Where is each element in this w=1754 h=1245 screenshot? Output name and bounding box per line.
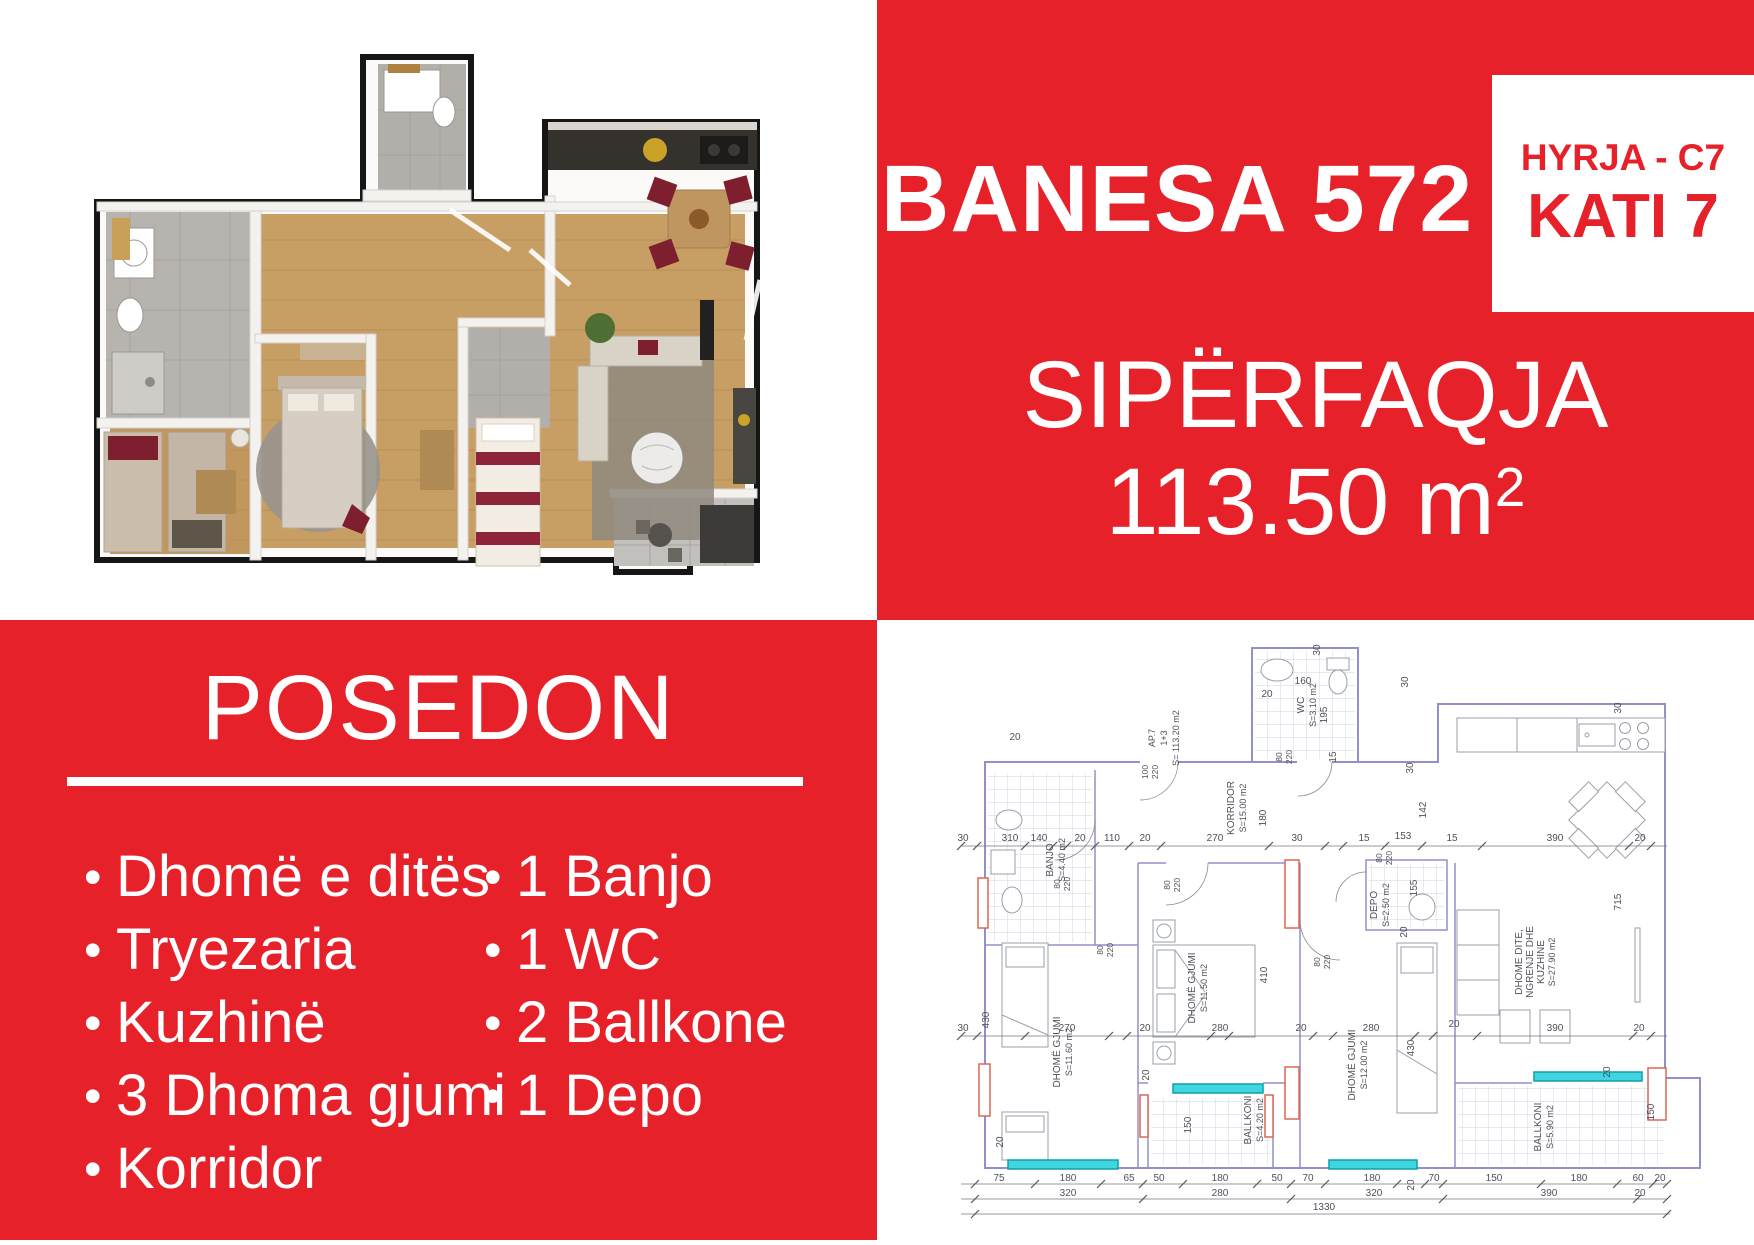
floor-label: KATI 7: [1527, 186, 1719, 248]
plan-label: 270: [1059, 1023, 1076, 1034]
list-item: •3 Dhoma gjumi: [84, 1059, 506, 1132]
plan-label: 15: [1446, 833, 1458, 844]
plan-label: 430: [981, 1011, 992, 1028]
plan-label: 15: [1358, 833, 1370, 844]
divider-line: [67, 777, 803, 786]
features-list-right: •1 Banjo•1 WC•2 Ballkone•1 Depo: [484, 840, 787, 1132]
bullet-icon: •: [84, 1067, 116, 1125]
list-item-label: 3 Dhoma gjumi: [116, 1062, 506, 1129]
plan-label: 220: [1150, 765, 1160, 779]
plan-label: 320: [1060, 1188, 1077, 1199]
plan-label: 80: [1374, 853, 1384, 863]
plan-label: 30: [957, 833, 969, 844]
plan-label: 30: [1613, 702, 1624, 714]
plan-label: 320: [1366, 1188, 1383, 1199]
plan-label: AP.7: [1147, 729, 1157, 747]
plan-label: 20: [1074, 833, 1086, 844]
plan-label: 220: [1172, 878, 1182, 892]
plan-label: 30: [1400, 676, 1411, 688]
plan-label: 220: [1284, 750, 1294, 764]
plan-label: 20: [1295, 1023, 1307, 1034]
plan-label: 30: [1291, 833, 1303, 844]
list-item: •1 Depo: [484, 1059, 787, 1132]
plan-label: 80: [1052, 879, 1062, 889]
plan-label: S=4.20 m2: [1255, 1098, 1265, 1142]
bullet-icon: •: [484, 848, 516, 906]
apartment-title: BANESA 572: [877, 152, 1477, 247]
area-title: SIPËRFAQJA: [877, 348, 1754, 443]
plan-label: 155: [1409, 879, 1420, 896]
header-panel: BANESA 572 HYRJA - C7 KATI 7 SIPËRFAQJA …: [877, 0, 1754, 620]
plan-label: 30: [957, 1023, 969, 1034]
bullet-icon: •: [484, 994, 516, 1052]
plan-label: S=15.00 m2: [1238, 784, 1248, 833]
plan-label: 50: [1271, 1173, 1283, 1184]
plan-label: 75: [993, 1173, 1005, 1184]
plan-label: 20: [1406, 1179, 1417, 1191]
plan-label: 110: [1104, 833, 1120, 844]
area-superscript: 2: [1495, 456, 1526, 518]
plan-label: 140: [1031, 833, 1048, 844]
plan-label: 20: [1654, 1173, 1666, 1184]
plan-label: 20: [995, 1136, 1006, 1148]
plan-label: 80: [1162, 880, 1172, 890]
plan-label: 142: [1418, 801, 1429, 818]
plan-label: 20: [1139, 833, 1151, 844]
list-item-label: Kuzhinë: [116, 989, 326, 1056]
area-value: 113.50 m2: [877, 455, 1754, 550]
plan-label: 180: [1060, 1173, 1077, 1184]
techplan-panel: WCS=3.10 m2KORRIDORS=15.00 m2AP.71+3S= 1…: [877, 620, 1754, 1240]
bullet-icon: •: [84, 848, 116, 906]
plan-label: NGRENJE DHE: [1525, 926, 1536, 998]
list-item: •1 Banjo: [484, 840, 787, 913]
list-item: •Korridor: [84, 1132, 506, 1205]
plan-label: S=11.50 m2: [1199, 964, 1209, 1012]
plan-label: 150: [1486, 1173, 1503, 1184]
plan-label: BANJO: [1045, 843, 1056, 877]
plan-label: BALLKONI: [1243, 1096, 1254, 1145]
plan-label: 390: [1547, 833, 1564, 844]
plan-label: 150: [1183, 1116, 1194, 1133]
list-item: •Kuzhinë: [84, 986, 506, 1059]
plan-door-arcs: [1055, 762, 1366, 960]
plan-label: 70: [1428, 1173, 1440, 1184]
plan-label: 153: [1395, 831, 1412, 842]
plan-label: KORRIDOR: [1226, 781, 1237, 835]
bullet-icon: •: [84, 1140, 116, 1198]
plan-label: 20: [1634, 833, 1646, 844]
list-item-label: Tryezaria: [116, 916, 356, 983]
plan-label: WC: [1296, 697, 1307, 714]
bullet-icon: •: [84, 994, 116, 1052]
plan-label: 220: [1384, 851, 1394, 865]
features-panel: POSEDON •Dhomë e ditës•Tryezaria•Kuzhinë…: [0, 620, 877, 1240]
plan-label: 220: [1322, 955, 1332, 969]
entry-label: HYRJA - C7: [1521, 139, 1725, 176]
plan-label: 180: [1258, 809, 1269, 826]
plan-label: 270: [1207, 833, 1224, 844]
list-item-label: 2 Ballkone: [516, 989, 787, 1056]
plan-label: S=5.90 m2: [1545, 1105, 1555, 1149]
plan-label: 1330: [1313, 1202, 1336, 1213]
features-title: POSEDON: [0, 662, 877, 754]
plan-label: 20: [1399, 926, 1410, 938]
plan-label: 180: [1212, 1173, 1229, 1184]
plan-label: 80: [1095, 945, 1105, 955]
plan-label: 60: [1632, 1173, 1644, 1184]
plan-label: DHOMË GJUMI: [1346, 1029, 1358, 1100]
plan-label: 20: [1139, 1023, 1151, 1034]
plan-label: 30: [1312, 644, 1323, 656]
plan-label: 195: [1319, 706, 1330, 723]
plan-label: S= 113.20 m2: [1171, 710, 1181, 766]
plan-label: S=4.40 m2: [1057, 838, 1067, 882]
plan-label: 410: [1259, 966, 1270, 983]
apartment-3d-render: [0, 0, 877, 620]
plan-label: KUZHINE: [1536, 940, 1547, 984]
list-item-label: 1 Banjo: [516, 843, 713, 910]
plan-label: 15: [1328, 751, 1339, 763]
plan-label: 180: [1364, 1173, 1381, 1184]
plan-label: S=27.90 m2: [1547, 938, 1557, 987]
plan-label: 220: [1105, 943, 1115, 957]
list-item-label: 1 WC: [516, 916, 661, 983]
plan-label: BALLKONI: [1533, 1103, 1544, 1152]
plan-label: 20: [1141, 1069, 1152, 1081]
plan-label: 390: [1541, 1188, 1558, 1199]
plan-label: 20: [1448, 1019, 1460, 1030]
plan-label: 280: [1212, 1023, 1229, 1034]
list-item: •1 WC: [484, 913, 787, 986]
plan-label: 80: [1312, 957, 1322, 967]
bullet-icon: •: [484, 1067, 516, 1125]
plan-label: 310: [1002, 833, 1019, 844]
plan-label: S=11.60 m2: [1064, 1028, 1074, 1076]
plan-label: DHOMË GJUMI: [1186, 952, 1198, 1023]
plan-label: 430: [1406, 1039, 1417, 1056]
render-panel: [0, 0, 877, 620]
plan-label: 50: [1153, 1173, 1165, 1184]
bullet-icon: •: [84, 921, 116, 979]
plan-label: 1+3: [1159, 730, 1169, 745]
plan-label: 70: [1302, 1173, 1314, 1184]
plan-label: 30: [1405, 762, 1416, 774]
plan-label: 280: [1212, 1188, 1229, 1199]
list-item-label: Korridor: [116, 1135, 322, 1202]
technical-floor-plan: WCS=3.10 m2KORRIDORS=15.00 m2AP.71+3S= 1…: [877, 620, 1754, 1240]
plan-label: 20: [1009, 732, 1021, 743]
plan-label: 100: [1140, 765, 1150, 779]
list-item-label: Dhomë e ditës: [116, 843, 490, 910]
plan-label: 20: [1633, 1023, 1645, 1034]
list-item: •Tryezaria: [84, 913, 506, 986]
plan-label: S=12.00 m2: [1359, 1041, 1369, 1090]
plan-label: S=3.10 m2: [1308, 683, 1318, 727]
plan-label: S=2.50 m2: [1381, 883, 1391, 927]
plan-label: 150: [1646, 1103, 1657, 1120]
plan-label: DHOME DITE,: [1514, 929, 1525, 995]
plan-label: 220: [1062, 877, 1072, 891]
plan-label: 160: [1295, 676, 1312, 687]
bullet-icon: •: [484, 921, 516, 979]
plan-label: 65: [1123, 1173, 1135, 1184]
plan-label: 390: [1547, 1023, 1564, 1034]
plan-label: DEPO: [1369, 891, 1380, 920]
entry-floor-box: HYRJA - C7 KATI 7: [1492, 75, 1754, 312]
plan-label: 280: [1363, 1023, 1380, 1034]
list-item-label: 1 Depo: [516, 1062, 703, 1129]
plan-label: 180: [1571, 1173, 1588, 1184]
list-item: •2 Ballkone: [484, 986, 787, 1059]
plan-label: 20: [1602, 1066, 1613, 1078]
plan-label: 20: [1634, 1188, 1646, 1199]
plan-label: 80: [1274, 752, 1284, 762]
features-list-left: •Dhomë e ditës•Tryezaria•Kuzhinë•3 Dhoma…: [84, 840, 506, 1205]
apartment-flyer: { "colors": { "brand_red": "#e6212a", "p…: [0, 0, 1754, 1240]
list-item: •Dhomë e ditës: [84, 840, 506, 913]
plan-label: 715: [1613, 893, 1624, 910]
plan-label: 20: [1261, 689, 1273, 700]
